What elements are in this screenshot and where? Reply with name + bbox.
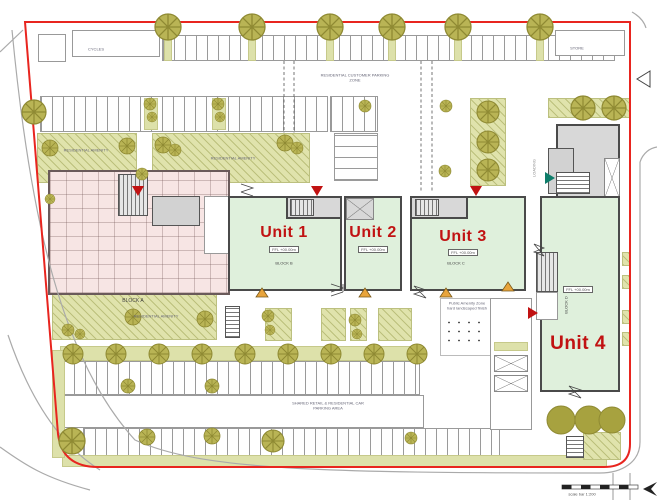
tree-icon xyxy=(575,406,603,434)
planter xyxy=(622,275,630,289)
give-way-marking xyxy=(637,71,650,87)
island xyxy=(378,308,412,341)
amenity-label-centre: RESIDENTIAL AMENITY xyxy=(211,157,256,162)
tree-strip xyxy=(60,346,420,361)
parking-aisle xyxy=(58,395,424,428)
verge-topright xyxy=(548,98,630,118)
store-topright xyxy=(555,30,625,56)
shared-parking-line2: PARKING AREA xyxy=(292,406,364,411)
block-a-core xyxy=(118,174,148,216)
verge-bottom xyxy=(62,455,607,467)
top-parking-line2: ZONE xyxy=(321,78,390,83)
unit1-label: Unit 1 xyxy=(260,224,307,242)
bin-store-landscape xyxy=(583,432,621,460)
block-a-label: BLOCK A xyxy=(122,298,143,304)
amenity-label-left: RESIDENTIAL AMENITY xyxy=(64,149,109,154)
block-b-label: BLOCK B xyxy=(275,261,292,266)
ffl-unit3: FFL +00.00m xyxy=(448,249,478,256)
block-d-lift xyxy=(604,158,620,198)
verge xyxy=(164,35,172,61)
verge xyxy=(494,342,528,351)
unit3-label: Unit 3 xyxy=(439,228,486,246)
verge-left xyxy=(52,350,65,458)
scale-label: scale bar 1:200 xyxy=(568,493,595,498)
ffl-unit4: FFL +00.00m xyxy=(563,286,593,293)
block-d-stores xyxy=(556,172,590,194)
unit2-label: Unit 2 xyxy=(349,224,396,242)
site-plan: FFL +00.00m FFL +00.00m FFL +00.00m FFL … xyxy=(0,0,657,500)
paving-dots xyxy=(444,318,488,348)
unit3-stairs xyxy=(415,199,439,216)
unit1-stairs xyxy=(290,199,314,216)
parking-row-2 xyxy=(40,96,328,132)
cycles-label: CYCLES xyxy=(88,48,104,53)
scale-bar xyxy=(562,485,638,489)
loading-bay xyxy=(494,375,528,392)
tree-icon xyxy=(547,406,575,434)
verge xyxy=(212,98,226,130)
bin-store xyxy=(566,436,584,458)
unit4-core xyxy=(536,252,558,292)
shared-parking-label: SHARED RETAIL & RESIDENTIAL CAR PARKING … xyxy=(292,401,364,410)
north-arrow-icon xyxy=(643,482,657,496)
store-square-topleft xyxy=(38,34,66,62)
island xyxy=(350,308,367,341)
parking-row-2b xyxy=(330,96,378,132)
unit4-lobby xyxy=(536,292,558,320)
verge xyxy=(454,35,462,61)
verge xyxy=(388,35,396,61)
unit2-boh xyxy=(346,198,374,220)
parking-lower-top xyxy=(62,361,420,395)
planter xyxy=(622,252,630,266)
tree-icon xyxy=(440,100,452,112)
unit4-label: Unit 4 xyxy=(550,333,606,355)
public-amenity-line2: hard landscaped finish xyxy=(447,306,487,311)
cycle-store-topleft xyxy=(72,30,160,57)
tree-column xyxy=(470,98,506,186)
cycle-stands xyxy=(225,306,240,338)
planter xyxy=(622,310,630,324)
ffl-unit1: FFL +00.00m xyxy=(269,246,299,253)
verge xyxy=(536,35,544,61)
island xyxy=(265,308,292,341)
corridor xyxy=(204,196,230,254)
ffl-unit2: FFL +00.00m xyxy=(358,246,388,253)
block-c-label: BLOCK C xyxy=(447,261,465,266)
tree-icon xyxy=(439,165,451,177)
tree-icon xyxy=(599,407,625,433)
loading-label: LOADING xyxy=(533,159,538,177)
amenity-label-blocka: RESIDENTIAL AMENITY xyxy=(134,315,179,320)
verge xyxy=(326,35,334,61)
block-a-lift xyxy=(152,196,200,226)
public-amenity-label: Public Amenity Zone hard landscaped fini… xyxy=(447,301,487,310)
top-parking-label: RESIDENTIAL CUSTOMER PARKING ZONE xyxy=(321,73,390,82)
island xyxy=(321,308,346,341)
store-label: STORE xyxy=(570,47,584,52)
planter xyxy=(622,332,630,346)
verge xyxy=(248,35,256,61)
verge xyxy=(144,98,158,130)
parking-side xyxy=(334,133,378,181)
block-d-label: BLOCK D xyxy=(564,296,569,314)
loading-bay xyxy=(494,355,528,372)
